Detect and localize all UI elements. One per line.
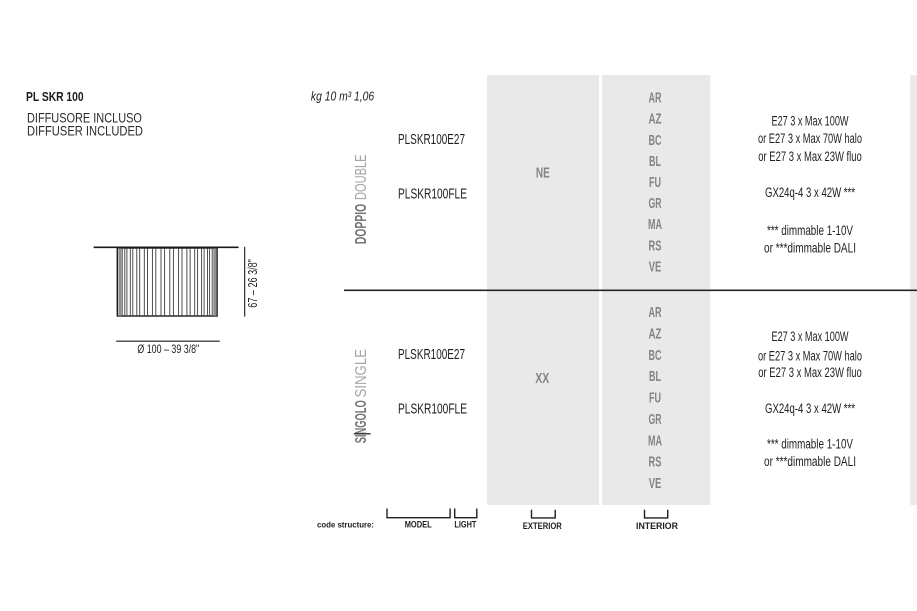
svg-text:or E27 3 x Max 23W fluo: or E27 3 x Max 23W fluo [758, 365, 862, 380]
svg-text:PLSKR100E27: PLSKR100E27 [398, 346, 465, 363]
svg-text:AZ: AZ [649, 111, 662, 128]
svg-text:PL SKR 100: PL SKR 100 [26, 89, 84, 104]
svg-text:PLSKR100FLE: PLSKR100FLE [398, 400, 467, 417]
svg-text:code structure:: code structure: [317, 520, 374, 530]
svg-text:RS: RS [649, 454, 662, 471]
svg-text:GX24q-4 3 x 42W ***: GX24q-4 3 x 42W *** [765, 401, 855, 416]
svg-text:GX24q-4 3 x 42W ***: GX24q-4 3 x 42W *** [765, 185, 855, 200]
svg-text:GR: GR [649, 411, 662, 428]
svg-text:Ø 100 – 39 3/8": Ø 100 – 39 3/8" [137, 343, 199, 356]
svg-text:or E27 3 x Max 70W halo: or E27 3 x Max 70W halo [758, 131, 862, 146]
svg-text:MA: MA [648, 216, 662, 233]
svg-text:MODEL: MODEL [405, 519, 432, 529]
svg-text:BC: BC [649, 347, 662, 364]
svg-text:AR: AR [649, 304, 662, 321]
svg-text:DIFFUSER INCLUDED: DIFFUSER INCLUDED [27, 123, 143, 139]
svg-text:LIGHT: LIGHT [454, 519, 476, 529]
svg-text:PLSKR100FLE: PLSKR100FLE [398, 185, 467, 202]
svg-text:*** dimmable 1-10V: *** dimmable 1-10V [767, 223, 853, 238]
svg-text:E27 3 x Max 100W: E27 3 x Max 100W [772, 329, 849, 344]
svg-text:SINGLE: SINGLE [353, 349, 370, 398]
svg-text:VE: VE [649, 258, 662, 275]
svg-text:GR: GR [649, 195, 662, 212]
svg-text:FU: FU [649, 390, 661, 407]
svg-text:DOUBLE: DOUBLE [353, 155, 370, 201]
svg-text:SINGOLO: SINGOLO [353, 400, 370, 443]
svg-text:RS: RS [649, 237, 662, 254]
svg-text:or ***dimmable DALI: or ***dimmable DALI [764, 241, 856, 256]
svg-text:*** dimmable 1-10V: *** dimmable 1-10V [767, 437, 853, 452]
svg-text:XX: XX [535, 370, 549, 387]
svg-text:NE: NE [536, 165, 550, 182]
svg-text:BL: BL [649, 153, 661, 170]
svg-text:INTERIOR: INTERIOR [636, 521, 678, 531]
svg-text:EXTERIOR: EXTERIOR [523, 521, 562, 531]
svg-text:67 – 26 3/8": 67 – 26 3/8" [246, 259, 260, 308]
svg-text:FU: FU [649, 174, 661, 191]
svg-text:DOPPIO: DOPPIO [353, 204, 370, 245]
svg-text:AZ: AZ [649, 326, 662, 343]
svg-text:or E27 3 x Max 70W halo: or E27 3 x Max 70W halo [758, 349, 862, 364]
svg-text:or E27 3 x Max 23W fluo: or E27 3 x Max 23W fluo [758, 149, 862, 164]
svg-text:VE: VE [649, 475, 662, 492]
svg-text:E27 3 x Max 100W: E27 3 x Max 100W [772, 114, 849, 129]
svg-text:or ***dimmable DALI: or ***dimmable DALI [764, 454, 856, 469]
svg-text:BL: BL [649, 368, 661, 385]
svg-text:AR: AR [649, 90, 662, 107]
svg-text:MA: MA [648, 432, 662, 449]
svg-text:BC: BC [649, 132, 662, 149]
svg-text:PLSKR100E27: PLSKR100E27 [398, 131, 465, 148]
svg-text:kg 10 m³ 1,06: kg 10 m³ 1,06 [311, 88, 375, 103]
